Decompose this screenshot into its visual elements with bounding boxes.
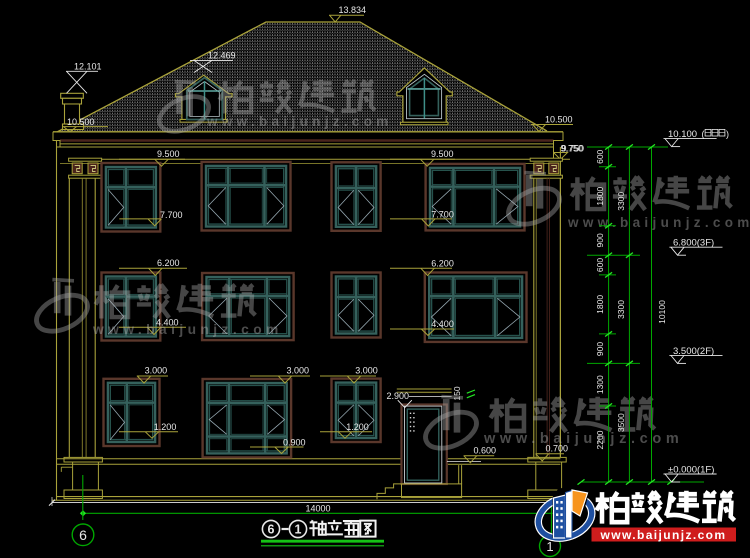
svg-text:14000: 14000 [306, 504, 331, 514]
svg-text:2200: 2200 [595, 430, 605, 449]
svg-text:±0.000(1F): ±0.000(1F) [668, 465, 714, 476]
svg-text:1: 1 [295, 523, 302, 537]
svg-text:4.400: 4.400 [431, 319, 454, 329]
svg-text:1.200: 1.200 [154, 422, 177, 432]
svg-text:3300: 3300 [616, 192, 626, 211]
svg-text:3300: 3300 [616, 300, 626, 319]
svg-text:www.baijunjz.com: www.baijunjz.com [600, 528, 727, 542]
svg-text:10100: 10100 [657, 300, 667, 324]
svg-text:900: 900 [595, 342, 605, 356]
svg-text:7.700: 7.700 [431, 210, 454, 220]
svg-text:10.100: 10.100 [668, 129, 697, 140]
svg-text:): ) [726, 129, 729, 139]
svg-text:www.baijunjz.com: www.baijunjz.com [567, 215, 750, 230]
svg-text:1800: 1800 [595, 186, 605, 205]
svg-text:1300: 1300 [595, 375, 605, 394]
svg-text:6.800(3F): 6.800(3F) [673, 238, 714, 249]
svg-text:www.baijunjz.com: www.baijunjz.com [92, 322, 283, 337]
svg-text:9.750: 9.750 [562, 144, 585, 154]
svg-text:9.500: 9.500 [431, 149, 454, 159]
svg-text:12.469: 12.469 [208, 51, 236, 61]
svg-text:1.200: 1.200 [346, 422, 369, 432]
svg-text:10.500: 10.500 [67, 117, 95, 127]
svg-text:600: 600 [595, 258, 605, 272]
svg-text:7.700: 7.700 [160, 210, 183, 220]
svg-text:6: 6 [268, 523, 275, 537]
svg-text:www.baijunjz.com: www.baijunjz.com [483, 431, 683, 447]
svg-text:0.900: 0.900 [283, 438, 306, 448]
svg-text:0.600: 0.600 [474, 446, 497, 456]
svg-text:2.900: 2.900 [387, 391, 410, 401]
svg-text:600: 600 [595, 149, 605, 163]
svg-text:9.500: 9.500 [157, 149, 180, 159]
svg-text:6: 6 [79, 527, 87, 543]
svg-text:1800: 1800 [595, 295, 605, 314]
svg-text:12.101: 12.101 [74, 62, 102, 72]
svg-text:1: 1 [546, 539, 553, 554]
svg-text:3.500(2F): 3.500(2F) [673, 346, 714, 357]
svg-text:3.000: 3.000 [287, 366, 310, 376]
svg-text:900: 900 [595, 233, 605, 247]
svg-text:3.000: 3.000 [145, 366, 168, 376]
svg-text:6.200: 6.200 [431, 259, 454, 269]
svg-text:13.834: 13.834 [339, 5, 367, 15]
svg-text:6.200: 6.200 [157, 258, 180, 268]
svg-text:www.baijunjz.com: www.baijunjz.com [206, 114, 393, 129]
svg-text:(: ( [702, 129, 705, 139]
svg-text:3.000: 3.000 [355, 366, 378, 376]
svg-text:10.500: 10.500 [545, 115, 573, 125]
svg-text:3500: 3500 [616, 413, 626, 432]
